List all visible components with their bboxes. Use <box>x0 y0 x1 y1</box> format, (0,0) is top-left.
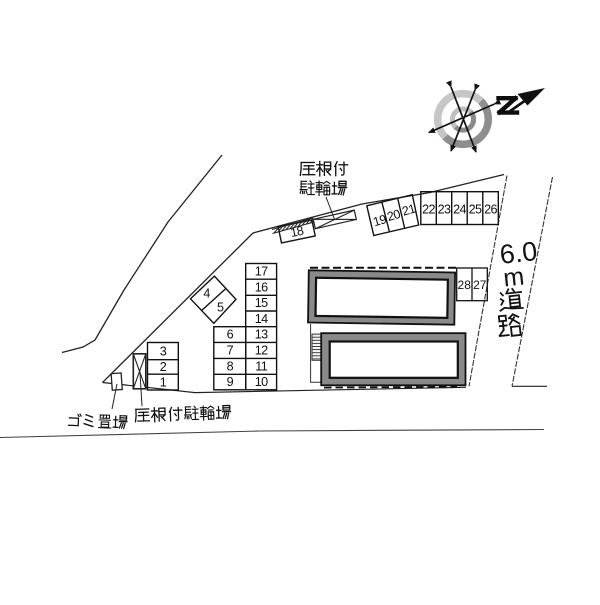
svg-text:8: 8 <box>227 359 234 373</box>
svg-text:7: 7 <box>227 343 234 357</box>
svg-text:12: 12 <box>255 343 268 357</box>
svg-text:m: m <box>502 262 526 292</box>
svg-text:5: 5 <box>217 301 224 315</box>
svg-text:4: 4 <box>203 287 210 301</box>
svg-text:26: 26 <box>484 203 497 217</box>
svg-text:14: 14 <box>255 312 268 326</box>
svg-text:6: 6 <box>227 328 234 342</box>
svg-text:15: 15 <box>255 296 268 310</box>
svg-text:9: 9 <box>227 375 234 389</box>
svg-text:17: 17 <box>255 264 268 278</box>
svg-text:25: 25 <box>469 203 482 217</box>
svg-text:2: 2 <box>160 360 167 374</box>
svg-text:10: 10 <box>255 375 268 389</box>
svg-text:3: 3 <box>160 345 167 359</box>
svg-text:1: 1 <box>160 375 167 389</box>
svg-text:23: 23 <box>438 203 451 217</box>
svg-text:27: 27 <box>473 278 487 292</box>
svg-text:22: 22 <box>422 203 435 217</box>
svg-text:16: 16 <box>255 280 268 294</box>
svg-text:11: 11 <box>255 359 267 373</box>
svg-text:13: 13 <box>255 328 268 342</box>
svg-text:28: 28 <box>458 278 472 292</box>
svg-text:24: 24 <box>453 203 466 217</box>
